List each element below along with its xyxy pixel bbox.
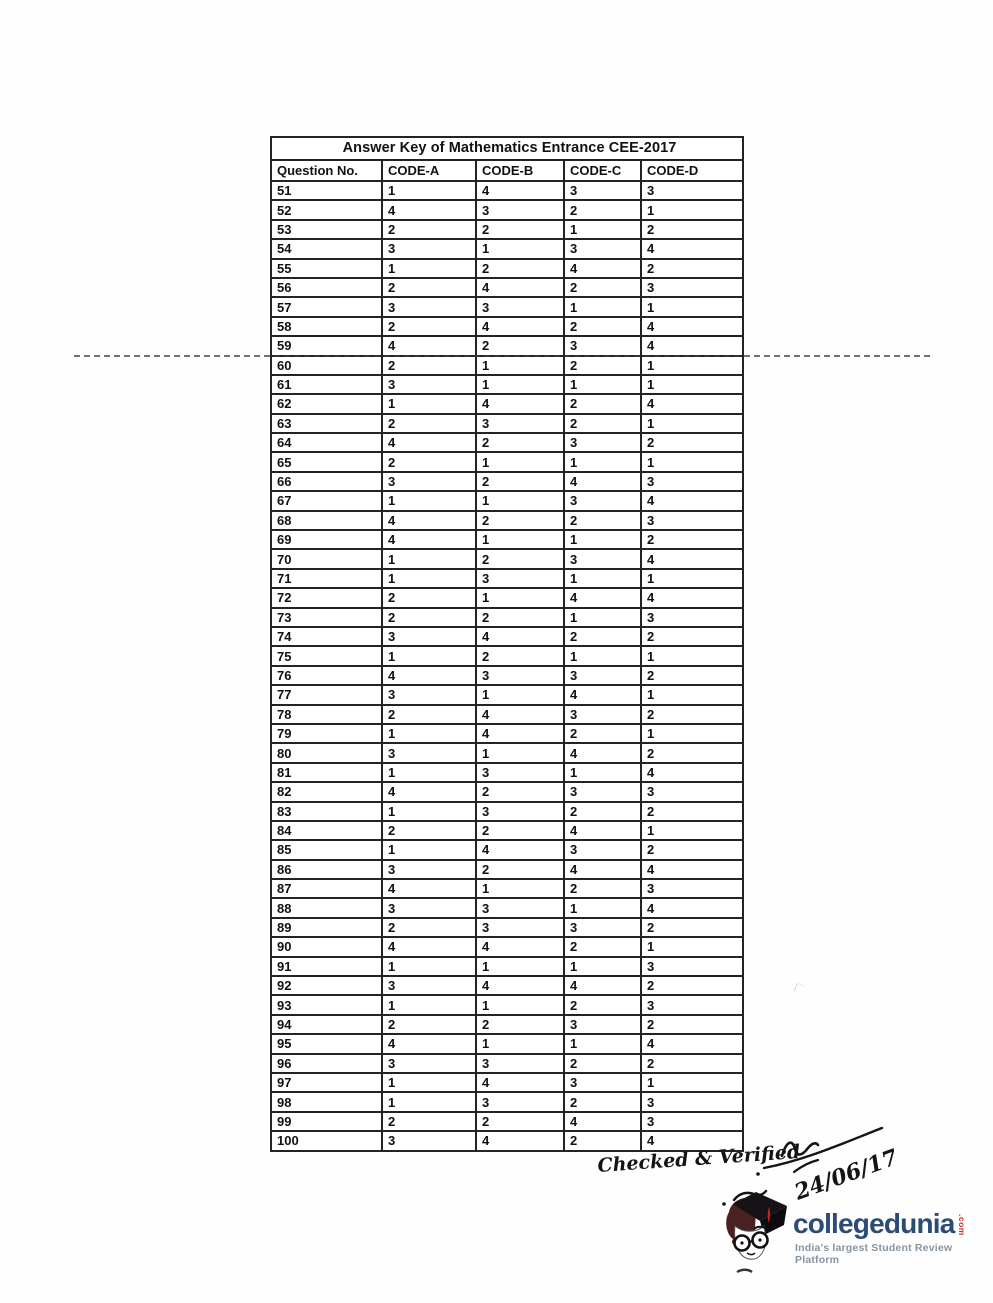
table-row: 86 3 2 4 4 <box>271 860 743 879</box>
cell-code-b: 3 <box>476 1092 564 1111</box>
cell-code-c: 3 <box>564 549 641 568</box>
cell-question: 79 <box>271 724 382 743</box>
cell-code-d: 1 <box>641 200 743 219</box>
cell-code-d: 2 <box>641 918 743 937</box>
cell-code-a: 3 <box>382 685 476 704</box>
cell-code-d: 1 <box>641 1073 743 1092</box>
cell-question: 81 <box>271 763 382 782</box>
table-row: 51 1 4 3 3 <box>271 181 743 200</box>
cell-code-d: 2 <box>641 1054 743 1073</box>
table-row: 92 3 4 4 2 <box>271 976 743 995</box>
cell-code-d: 4 <box>641 549 743 568</box>
cell-code-d: 3 <box>641 608 743 627</box>
cell-code-d: 1 <box>641 685 743 704</box>
table-row: 54 3 1 3 4 <box>271 239 743 258</box>
cell-code-c: 1 <box>564 957 641 976</box>
cell-code-b: 1 <box>476 452 564 471</box>
cell-code-c: 2 <box>564 802 641 821</box>
cell-code-b: 1 <box>476 239 564 258</box>
cell-question: 77 <box>271 685 382 704</box>
table-row: 55 1 2 4 2 <box>271 259 743 278</box>
cell-code-a: 1 <box>382 1092 476 1111</box>
cell-code-a: 4 <box>382 530 476 549</box>
cell-code-d: 4 <box>641 1034 743 1053</box>
cell-code-b: 2 <box>476 511 564 530</box>
table-row: 75 1 2 1 1 <box>271 646 743 665</box>
cell-question: 71 <box>271 569 382 588</box>
cell-code-d: 3 <box>641 472 743 491</box>
cell-code-c: 4 <box>564 821 641 840</box>
cell-code-b: 4 <box>476 181 564 200</box>
collegedunia-logo: collegedunia .com India's largest Studen… <box>723 1192 985 1284</box>
cell-code-c: 2 <box>564 200 641 219</box>
cell-question: 52 <box>271 200 382 219</box>
cell-code-d: 1 <box>641 452 743 471</box>
cell-code-a: 2 <box>382 608 476 627</box>
cell-code-c: 2 <box>564 317 641 336</box>
cell-code-d: 4 <box>641 898 743 917</box>
header-code-b: CODE-B <box>476 160 564 181</box>
cell-code-a: 3 <box>382 898 476 917</box>
cell-question: 66 <box>271 472 382 491</box>
cell-code-a: 4 <box>382 782 476 801</box>
cell-code-c: 2 <box>564 1092 641 1111</box>
cell-code-b: 4 <box>476 724 564 743</box>
cell-code-c: 4 <box>564 743 641 762</box>
cell-code-a: 2 <box>382 452 476 471</box>
cell-code-a: 1 <box>382 259 476 278</box>
cell-code-b: 4 <box>476 705 564 724</box>
cell-code-c: 3 <box>564 491 641 510</box>
table-row: 73 2 2 1 3 <box>271 608 743 627</box>
cell-code-d: 3 <box>641 995 743 1014</box>
table-row: 77 3 1 4 1 <box>271 685 743 704</box>
cell-code-d: 4 <box>641 336 743 355</box>
cell-question: 70 <box>271 549 382 568</box>
cell-code-c: 2 <box>564 394 641 413</box>
cell-question: 56 <box>271 278 382 297</box>
table-row: 72 2 1 4 4 <box>271 588 743 607</box>
cell-code-a: 4 <box>382 879 476 898</box>
cell-code-b: 3 <box>476 898 564 917</box>
table-row: 81 1 3 1 4 <box>271 763 743 782</box>
cell-question: 53 <box>271 220 382 239</box>
cell-code-d: 2 <box>641 976 743 995</box>
cell-code-a: 4 <box>382 433 476 452</box>
cell-code-c: 1 <box>564 608 641 627</box>
cell-code-a: 2 <box>382 1112 476 1131</box>
cell-code-b: 4 <box>476 1131 564 1150</box>
cell-code-b: 4 <box>476 840 564 859</box>
cell-code-c: 1 <box>564 375 641 394</box>
cell-code-b: 4 <box>476 976 564 995</box>
table-row: 91 1 1 1 3 <box>271 957 743 976</box>
cell-code-c: 3 <box>564 840 641 859</box>
cell-code-c: 3 <box>564 336 641 355</box>
cell-code-d: 4 <box>641 239 743 258</box>
cell-code-c: 3 <box>564 705 641 724</box>
cell-code-a: 2 <box>382 220 476 239</box>
cell-question: 94 <box>271 1015 382 1034</box>
table-row: 57 3 3 1 1 <box>271 297 743 316</box>
table-row: 67 1 1 3 4 <box>271 491 743 510</box>
table-row: 96 3 3 2 2 <box>271 1054 743 1073</box>
cell-question: 72 <box>271 588 382 607</box>
cell-code-b: 1 <box>476 1034 564 1053</box>
cell-code-a: 4 <box>382 200 476 219</box>
cell-code-c: 2 <box>564 356 641 375</box>
cell-code-c: 4 <box>564 685 641 704</box>
cell-code-a: 2 <box>382 1015 476 1034</box>
checked-verified-text: Checked & Verified <box>597 1141 801 1177</box>
cell-code-a: 3 <box>382 1054 476 1073</box>
cell-code-d: 2 <box>641 1015 743 1034</box>
cell-question: 96 <box>271 1054 382 1073</box>
cell-question: 100 <box>271 1131 382 1150</box>
cell-code-a: 3 <box>382 239 476 258</box>
cell-question: 60 <box>271 356 382 375</box>
cell-code-d: 3 <box>641 278 743 297</box>
cell-code-c: 4 <box>564 860 641 879</box>
cell-code-c: 4 <box>564 588 641 607</box>
cell-code-c: 1 <box>564 220 641 239</box>
cell-question: 87 <box>271 879 382 898</box>
cell-code-a: 1 <box>382 394 476 413</box>
cell-code-a: 2 <box>382 317 476 336</box>
cell-code-b: 2 <box>476 608 564 627</box>
table-row: 68 4 2 2 3 <box>271 511 743 530</box>
cell-question: 85 <box>271 840 382 859</box>
table-row: 78 2 4 3 2 <box>271 705 743 724</box>
cell-code-c: 1 <box>564 898 641 917</box>
cell-code-a: 4 <box>382 937 476 956</box>
cell-question: 91 <box>271 957 382 976</box>
cell-code-d: 2 <box>641 433 743 452</box>
cell-question: 69 <box>271 530 382 549</box>
table-row: 60 2 1 2 1 <box>271 356 743 375</box>
table-row: 62 1 4 2 4 <box>271 394 743 413</box>
cell-code-b: 1 <box>476 356 564 375</box>
cell-code-c: 4 <box>564 472 641 491</box>
table-title-row: Answer Key of Mathematics Entrance CEE-2… <box>271 137 743 160</box>
cell-code-c: 1 <box>564 646 641 665</box>
cell-code-b: 2 <box>476 646 564 665</box>
cell-code-d: 2 <box>641 627 743 646</box>
cell-code-b: 4 <box>476 627 564 646</box>
answer-key-table: Answer Key of Mathematics Entrance CEE-2… <box>270 136 744 1152</box>
cell-code-a: 3 <box>382 375 476 394</box>
cell-code-d: 1 <box>641 356 743 375</box>
cell-code-d: 4 <box>641 394 743 413</box>
cell-code-d: 1 <box>641 646 743 665</box>
cell-code-a: 2 <box>382 821 476 840</box>
cell-code-b: 2 <box>476 1112 564 1131</box>
cell-question: 88 <box>271 898 382 917</box>
table-row: 95 4 1 1 4 <box>271 1034 743 1053</box>
table-row: 76 4 3 3 2 <box>271 666 743 685</box>
cell-code-d: 1 <box>641 821 743 840</box>
scan-artifact-speck <box>794 983 806 995</box>
cell-question: 62 <box>271 394 382 413</box>
cell-question: 55 <box>271 259 382 278</box>
collegedunia-tld: .com <box>957 1214 967 1236</box>
cell-question: 57 <box>271 297 382 316</box>
table-row: 90 4 4 2 1 <box>271 937 743 956</box>
cell-code-a: 1 <box>382 802 476 821</box>
cell-question: 76 <box>271 666 382 685</box>
table-row: 66 3 2 4 3 <box>271 472 743 491</box>
cell-code-b: 2 <box>476 472 564 491</box>
cell-question: 74 <box>271 627 382 646</box>
cell-code-c: 3 <box>564 1015 641 1034</box>
cell-code-d: 1 <box>641 414 743 433</box>
cell-question: 51 <box>271 181 382 200</box>
cell-code-a: 1 <box>382 181 476 200</box>
cell-question: 61 <box>271 375 382 394</box>
cell-code-a: 1 <box>382 491 476 510</box>
cell-code-c: 4 <box>564 976 641 995</box>
cell-question: 68 <box>271 511 382 530</box>
cell-code-b: 1 <box>476 685 564 704</box>
cell-code-d: 2 <box>641 802 743 821</box>
cell-code-b: 1 <box>476 491 564 510</box>
cell-code-a: 2 <box>382 918 476 937</box>
cell-question: 78 <box>271 705 382 724</box>
cell-code-d: 2 <box>641 743 743 762</box>
cell-code-b: 2 <box>476 860 564 879</box>
cell-code-b: 3 <box>476 763 564 782</box>
cell-code-c: 2 <box>564 995 641 1014</box>
cell-code-b: 2 <box>476 821 564 840</box>
table-row: 63 2 3 2 1 <box>271 414 743 433</box>
cell-code-d: 3 <box>641 957 743 976</box>
table-row: 56 2 4 2 3 <box>271 278 743 297</box>
cell-code-c: 2 <box>564 937 641 956</box>
table-row: 79 1 4 2 1 <box>271 724 743 743</box>
cell-code-b: 2 <box>476 220 564 239</box>
cell-code-b: 4 <box>476 937 564 956</box>
cell-code-c: 2 <box>564 278 641 297</box>
cell-code-b: 2 <box>476 782 564 801</box>
cell-question: 59 <box>271 336 382 355</box>
cell-code-b: 2 <box>476 1015 564 1034</box>
cell-code-d: 3 <box>641 1092 743 1111</box>
cell-code-c: 3 <box>564 782 641 801</box>
table-row: 98 1 3 2 3 <box>271 1092 743 1111</box>
table-row: 87 4 1 2 3 <box>271 879 743 898</box>
cell-code-a: 1 <box>382 1073 476 1092</box>
cell-question: 65 <box>271 452 382 471</box>
cell-code-b: 2 <box>476 336 564 355</box>
table-row: 53 2 2 1 2 <box>271 220 743 239</box>
collegedunia-mascot-icon <box>723 1192 789 1278</box>
collegedunia-wordmark: collegedunia <box>793 1208 955 1240</box>
cell-code-b: 3 <box>476 802 564 821</box>
cell-code-a: 2 <box>382 588 476 607</box>
cell-code-b: 2 <box>476 433 564 452</box>
cell-question: 98 <box>271 1092 382 1111</box>
table-row: 65 2 1 1 1 <box>271 452 743 471</box>
cell-code-a: 2 <box>382 414 476 433</box>
cell-code-d: 1 <box>641 724 743 743</box>
cell-code-a: 3 <box>382 743 476 762</box>
cell-code-d: 3 <box>641 879 743 898</box>
cell-question: 84 <box>271 821 382 840</box>
cell-code-c: 3 <box>564 666 641 685</box>
cell-code-a: 1 <box>382 569 476 588</box>
cell-code-d: 2 <box>641 705 743 724</box>
cell-code-c: 3 <box>564 918 641 937</box>
table-row: 89 2 3 3 2 <box>271 918 743 937</box>
table-row: 74 3 4 2 2 <box>271 627 743 646</box>
cell-question: 86 <box>271 860 382 879</box>
cell-code-a: 3 <box>382 976 476 995</box>
table-row: 85 1 4 3 2 <box>271 840 743 859</box>
cell-code-d: 2 <box>641 840 743 859</box>
cell-code-a: 3 <box>382 472 476 491</box>
cell-code-d: 2 <box>641 220 743 239</box>
table-row: 88 3 3 1 4 <box>271 898 743 917</box>
cell-code-d: 1 <box>641 937 743 956</box>
cell-code-b: 2 <box>476 259 564 278</box>
cell-code-b: 1 <box>476 957 564 976</box>
cell-code-a: 4 <box>382 666 476 685</box>
cell-code-c: 1 <box>564 763 641 782</box>
cell-code-d: 1 <box>641 569 743 588</box>
table-row: 82 4 2 3 3 <box>271 782 743 801</box>
cell-code-a: 1 <box>382 646 476 665</box>
cell-code-d: 4 <box>641 763 743 782</box>
cell-code-c: 2 <box>564 1054 641 1073</box>
cell-code-c: 1 <box>564 1034 641 1053</box>
cell-code-c: 2 <box>564 724 641 743</box>
cell-question: 54 <box>271 239 382 258</box>
cell-code-a: 1 <box>382 957 476 976</box>
cell-code-c: 3 <box>564 1073 641 1092</box>
cell-code-c: 1 <box>564 297 641 316</box>
table-row: 70 1 2 3 4 <box>271 549 743 568</box>
cell-code-d: 4 <box>641 588 743 607</box>
cell-question: 89 <box>271 918 382 937</box>
cell-question: 90 <box>271 937 382 956</box>
table-header-row: Question No. CODE-A CODE-B CODE-C CODE-D <box>271 160 743 181</box>
header-code-a: CODE-A <box>382 160 476 181</box>
cell-question: 75 <box>271 646 382 665</box>
cell-question: 99 <box>271 1112 382 1131</box>
cell-code-b: 1 <box>476 879 564 898</box>
cell-code-d: 3 <box>641 511 743 530</box>
table-row: 83 1 3 2 2 <box>271 802 743 821</box>
collegedunia-tagline: India's largest Student Review Platform <box>795 1242 985 1266</box>
cell-question: 64 <box>271 433 382 452</box>
table-row: 59 4 2 3 4 <box>271 336 743 355</box>
table-row: 84 2 2 4 1 <box>271 821 743 840</box>
cell-code-a: 1 <box>382 763 476 782</box>
cell-code-a: 1 <box>382 840 476 859</box>
cell-code-d: 4 <box>641 860 743 879</box>
cell-question: 83 <box>271 802 382 821</box>
cell-code-a: 4 <box>382 511 476 530</box>
cell-code-b: 1 <box>476 995 564 1014</box>
scanned-page: Answer Key of Mathematics Entrance CEE-2… <box>0 0 993 1303</box>
cell-code-b: 3 <box>476 666 564 685</box>
cell-code-a: 3 <box>382 1131 476 1150</box>
cell-question: 67 <box>271 491 382 510</box>
table-row: 69 4 1 1 2 <box>271 530 743 549</box>
cell-question: 93 <box>271 995 382 1014</box>
cell-code-a: 1 <box>382 995 476 1014</box>
cell-code-d: 2 <box>641 530 743 549</box>
cell-code-c: 1 <box>564 530 641 549</box>
cell-code-a: 4 <box>382 1034 476 1053</box>
cell-code-d: 3 <box>641 782 743 801</box>
cell-code-b: 3 <box>476 569 564 588</box>
cell-code-b: 4 <box>476 1073 564 1092</box>
cell-code-a: 2 <box>382 356 476 375</box>
header-code-c: CODE-C <box>564 160 641 181</box>
cell-code-c: 2 <box>564 414 641 433</box>
answer-table-body: 51 1 4 3 3 52 4 3 2 1 53 2 2 1 2 54 3 1 … <box>271 181 743 1151</box>
cell-question: 73 <box>271 608 382 627</box>
cell-code-d: 1 <box>641 375 743 394</box>
cell-code-a: 1 <box>382 724 476 743</box>
cell-code-c: 4 <box>564 259 641 278</box>
table-row: 94 2 2 3 2 <box>271 1015 743 1034</box>
cell-question: 95 <box>271 1034 382 1053</box>
cell-code-d: 2 <box>641 666 743 685</box>
table-row: 80 3 1 4 2 <box>271 743 743 762</box>
table-title: Answer Key of Mathematics Entrance CEE-2… <box>271 137 743 160</box>
cell-code-b: 4 <box>476 278 564 297</box>
cell-question: 82 <box>271 782 382 801</box>
cell-code-d: 4 <box>641 317 743 336</box>
cell-code-a: 1 <box>382 549 476 568</box>
cell-code-c: 2 <box>564 627 641 646</box>
cell-code-c: 1 <box>564 452 641 471</box>
cell-code-b: 3 <box>476 414 564 433</box>
cell-code-b: 1 <box>476 375 564 394</box>
cell-code-b: 1 <box>476 530 564 549</box>
header-code-d: CODE-D <box>641 160 743 181</box>
cell-question: 97 <box>271 1073 382 1092</box>
cell-code-b: 1 <box>476 588 564 607</box>
cell-code-b: 4 <box>476 317 564 336</box>
table-row: 52 4 3 2 1 <box>271 200 743 219</box>
cell-code-a: 2 <box>382 705 476 724</box>
cell-code-a: 3 <box>382 627 476 646</box>
table-row: 64 4 2 3 2 <box>271 433 743 452</box>
cell-code-b: 3 <box>476 297 564 316</box>
cell-code-a: 4 <box>382 336 476 355</box>
cell-code-d: 2 <box>641 259 743 278</box>
cell-code-c: 1 <box>564 569 641 588</box>
cell-code-c: 3 <box>564 181 641 200</box>
cell-question: 80 <box>271 743 382 762</box>
table-row: 71 1 3 1 1 <box>271 569 743 588</box>
cell-code-c: 3 <box>564 239 641 258</box>
cell-code-d: 1 <box>641 297 743 316</box>
table-row: 58 2 4 2 4 <box>271 317 743 336</box>
cell-code-d: 3 <box>641 181 743 200</box>
cell-code-b: 1 <box>476 743 564 762</box>
cell-code-a: 2 <box>382 278 476 297</box>
table-row: 93 1 1 2 3 <box>271 995 743 1014</box>
cell-code-b: 4 <box>476 394 564 413</box>
cell-question: 92 <box>271 976 382 995</box>
handwriting-dot <box>756 1172 760 1176</box>
cell-code-b: 3 <box>476 200 564 219</box>
cell-code-c: 3 <box>564 433 641 452</box>
